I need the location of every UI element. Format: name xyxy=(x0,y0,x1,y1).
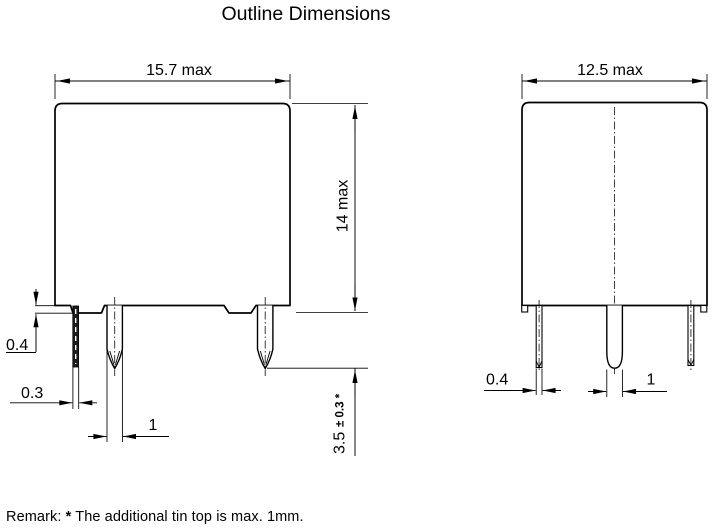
front-view-height-label: 14 max xyxy=(335,180,352,232)
outline-dimensions-page: Outline Dimensions xyxy=(0,0,714,532)
side-view-terminal-width-label: 1 xyxy=(647,372,656,389)
side-view-width-dimension: 12.5 max xyxy=(522,62,707,99)
side-view-right-foot xyxy=(701,306,707,313)
side-view: 12.5 max 0.4 1 xyxy=(484,62,707,397)
front-view-standoff-label: 0.4 xyxy=(6,337,28,354)
front-view-terminal-thickness-dimension: 0.3 xyxy=(10,385,97,403)
front-view: 15.7 max 14 max 0.4 0.3 xyxy=(6,62,368,456)
front-view-terminal-width-dimension: 1 xyxy=(88,417,169,437)
side-view-left-foot xyxy=(522,306,528,313)
front-view-terminal-width-label: 1 xyxy=(149,417,158,434)
front-view-terminal-length-label: 3.5 xyxy=(332,432,349,454)
drawing-title: Outline Dimensions xyxy=(221,3,390,25)
front-view-terminal-length-tolerance-label: ± 0.3 * xyxy=(335,393,347,427)
side-view-center-terminal xyxy=(607,306,623,369)
remark-text: The additional tin top is max. 1mm. xyxy=(75,509,303,525)
front-view-terminal-thickness-label: 0.3 xyxy=(21,385,43,402)
front-view-width-label: 15.7 max xyxy=(146,62,212,79)
front-view-width-dimension: 15.7 max xyxy=(55,62,290,99)
remark: Remark: * The additional tin top is max.… xyxy=(6,509,304,525)
side-view-width-label: 12.5 max xyxy=(577,62,643,79)
front-view-height-dimension: 14 max xyxy=(335,105,356,311)
side-view-terminal-width-dimension: 1 xyxy=(588,372,667,392)
front-view-standoff-dimension: 0.4 xyxy=(6,289,36,354)
remark-label: Remark: xyxy=(6,509,62,525)
outline-drawing: Outline Dimensions xyxy=(0,0,714,532)
remark-star: * xyxy=(66,509,72,525)
side-view-terminal-thickness-label: 0.4 xyxy=(486,372,508,389)
front-view-case xyxy=(55,104,290,314)
side-view-terminal-thickness-dimension: 0.4 xyxy=(484,372,561,391)
side-view-extension-lines xyxy=(536,369,622,398)
front-view-terminal-length-dimension: 3.5 ± 0.3 * xyxy=(332,369,356,457)
